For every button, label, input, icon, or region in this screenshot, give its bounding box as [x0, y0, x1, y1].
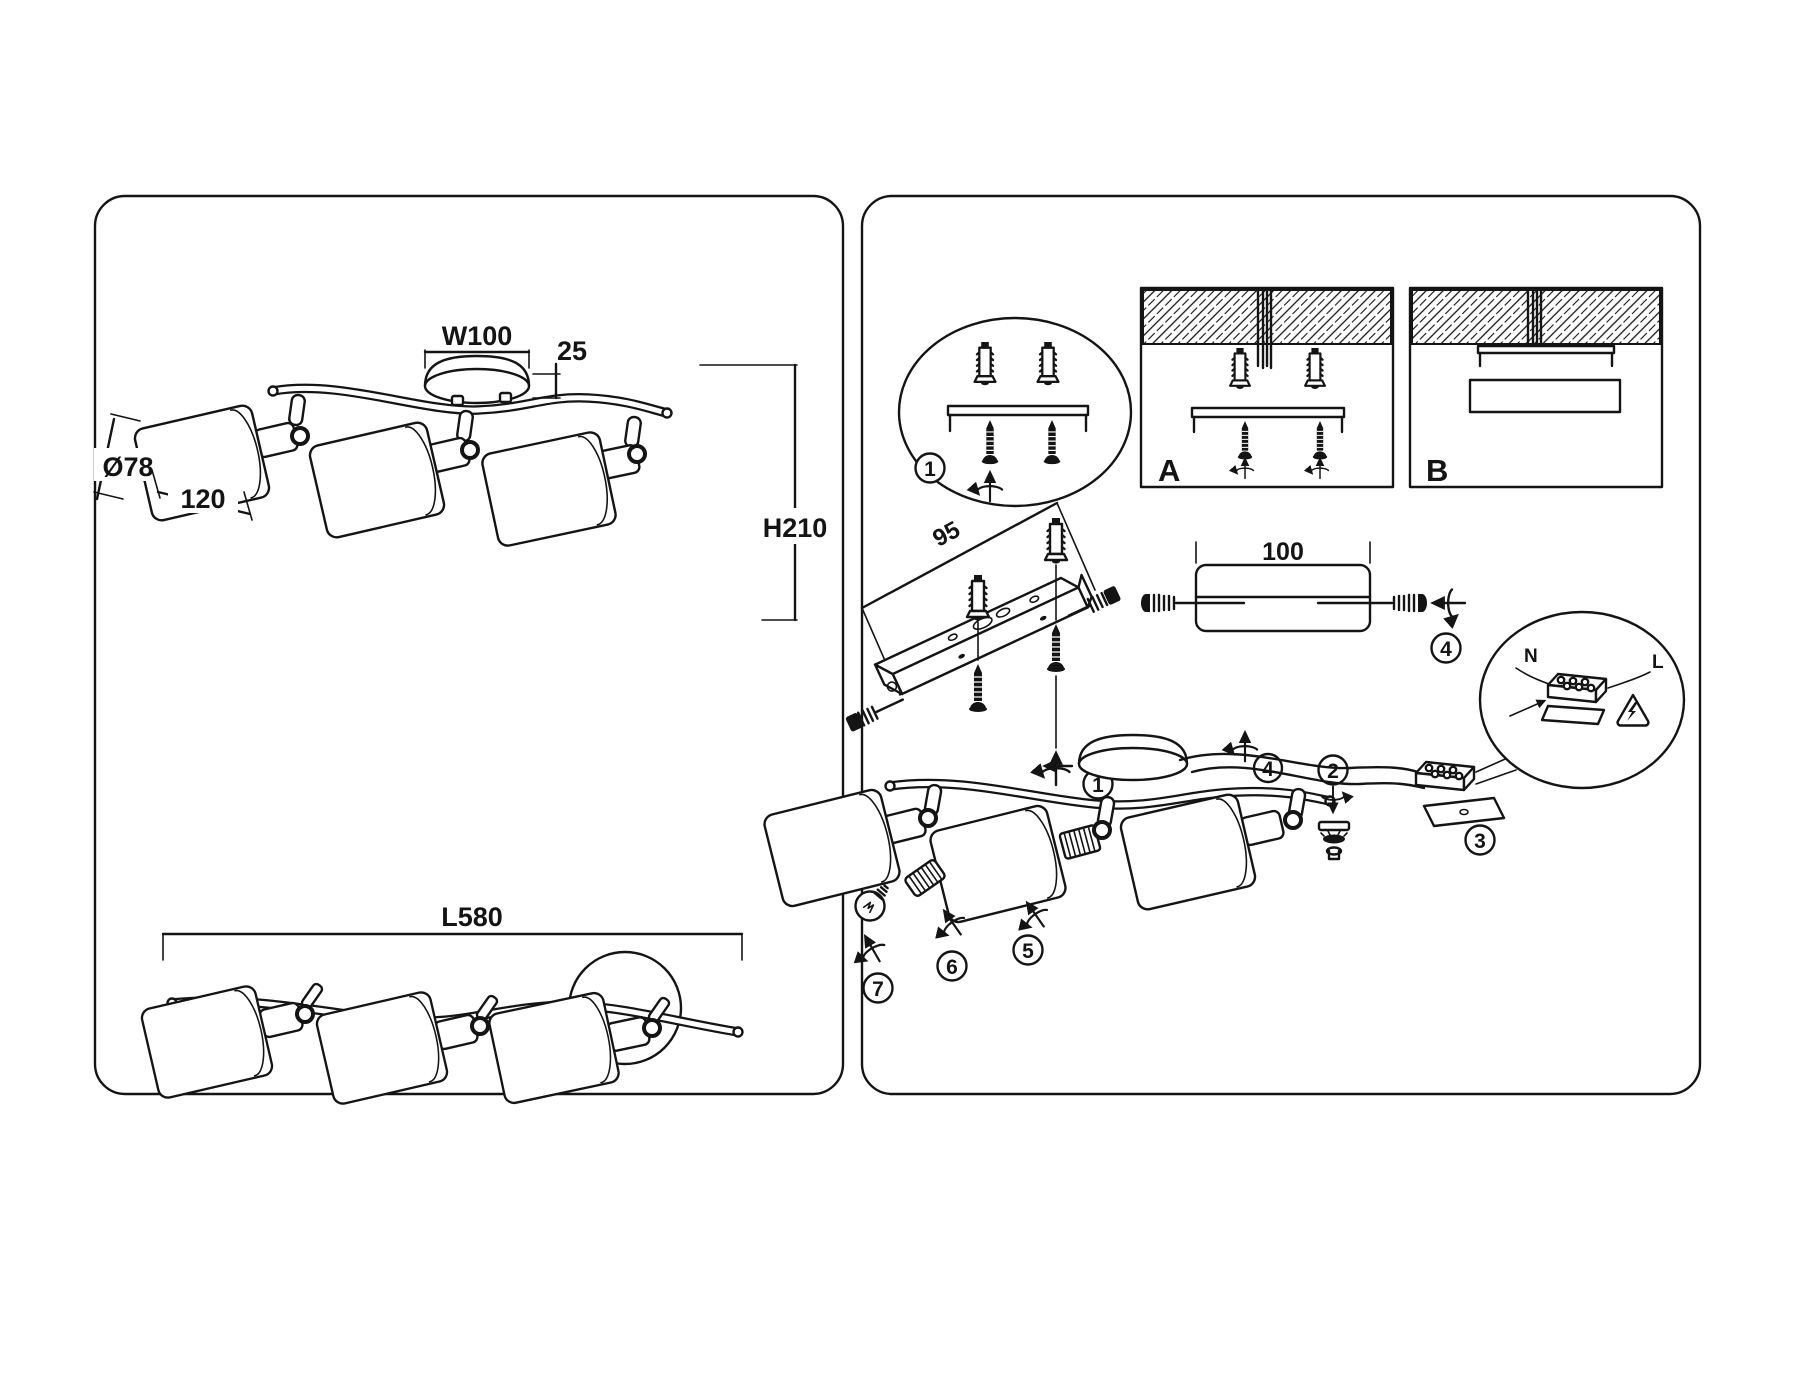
svg-text:1: 1 [924, 458, 936, 481]
connection-plate [1542, 706, 1604, 724]
dim-label-h210: H210 [763, 513, 828, 543]
svg-text:6: 6 [946, 956, 958, 979]
dim-label-100: 100 [1262, 538, 1304, 566]
dim-label-d78: Ø78 [102, 452, 153, 482]
step-badge-6: 6 [938, 952, 967, 981]
step-badge-4: 4 [1432, 634, 1461, 663]
mounting-option-a: A [1141, 288, 1393, 488]
dim-label-w100: W100 [442, 321, 513, 351]
step-badge-3: 3 [1466, 826, 1495, 855]
svg-text:3: 3 [1474, 830, 1486, 853]
step-badge-7: 7 [864, 974, 893, 1003]
dim-label-120: 120 [180, 484, 225, 514]
svg-text:2: 2 [1327, 760, 1339, 783]
instruction-drawing: W100 25 Ø78 120 H210 [0, 0, 1800, 1400]
svg-text:7: 7 [872, 978, 884, 1001]
ceiling-canopy [1079, 735, 1187, 780]
mounting-bracket [948, 406, 1088, 415]
step1-detail-callout: 1 [899, 318, 1131, 506]
ceiling-canopy [425, 356, 529, 405]
left-panel: W100 25 Ø78 120 H210 [94, 196, 843, 1106]
step-badge-1: 1 [916, 454, 945, 483]
dim-label-25: 25 [557, 336, 587, 366]
mounting-option-b: B [1410, 288, 1662, 488]
option-a-label: A [1158, 453, 1180, 488]
option-b-label: B [1426, 453, 1448, 488]
dim-label-l580: L580 [441, 902, 503, 932]
wire-label-l: L [1652, 652, 1664, 673]
step-badge-5: 5 [1014, 936, 1043, 965]
instruction-sheet: W100 25 Ø78 120 H210 [0, 0, 1800, 1400]
wiring-detail-callout: N L [1480, 612, 1684, 788]
right-panel: 1 A B [762, 196, 1700, 1094]
mounting-bracket [1478, 346, 1614, 353]
mounting-plate [1470, 380, 1620, 412]
svg-text:5: 5 [1022, 940, 1034, 963]
wire-label-n: N [1524, 646, 1538, 667]
svg-text:4: 4 [1440, 638, 1452, 661]
mounting-bracket [1192, 408, 1344, 417]
